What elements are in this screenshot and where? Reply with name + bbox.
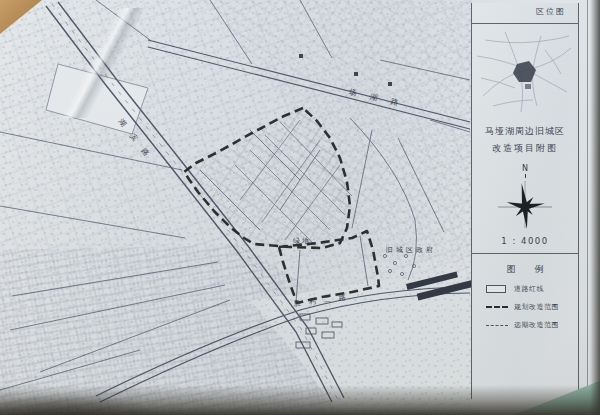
sidebar-divider [472, 253, 578, 254]
scale-text: 1 : 4000 [472, 236, 578, 246]
inset-panel-title: 区位图 [472, 3, 578, 24]
paper-sheet: 场湖路 湖滨路 胜利二路 绿地 旧城区政府 区位图 [0, 0, 600, 415]
legend-item-road-redline: 道路红线 [472, 284, 578, 294]
legend-title: 图 例 [472, 263, 578, 276]
legend-item-future-scope: 远期改造范围 [472, 320, 578, 330]
fine-dash-symbol-icon [486, 325, 508, 326]
legend-label: 远期改造范围 [514, 320, 559, 330]
map-title-line1: 马垭湖周边旧城区 [472, 123, 578, 140]
sheet-border-line [587, 0, 588, 403]
map-title-line2: 改造项目附图 [472, 140, 578, 157]
compass-rose-icon [496, 178, 554, 230]
north-label: N [472, 165, 578, 178]
legend-item-renewal-scope: 规划改造范围 [472, 302, 578, 312]
green-space-label: 绿地 [293, 237, 311, 245]
government-label: 旧城区政府 [386, 246, 436, 254]
legend: 道路红线 规划改造范围 远期改造范围 [472, 284, 578, 330]
rect-symbol-icon [486, 285, 508, 293]
photo-of-paper-map: 场湖路 湖滨路 胜利二路 绿地 旧城区政府 区位图 [0, 0, 600, 415]
bold-dash-symbol-icon [486, 306, 508, 308]
legend-label: 规划改造范围 [514, 302, 559, 312]
location-inset-map [475, 26, 575, 116]
compass-block: N [472, 165, 578, 234]
map-title: 马垭湖周边旧城区 改造项目附图 [472, 123, 578, 157]
legend-label: 道路红线 [514, 284, 544, 294]
map-sidebar: 区位图 马垭湖周边旧城区 改造项目附图 N [471, 3, 579, 399]
